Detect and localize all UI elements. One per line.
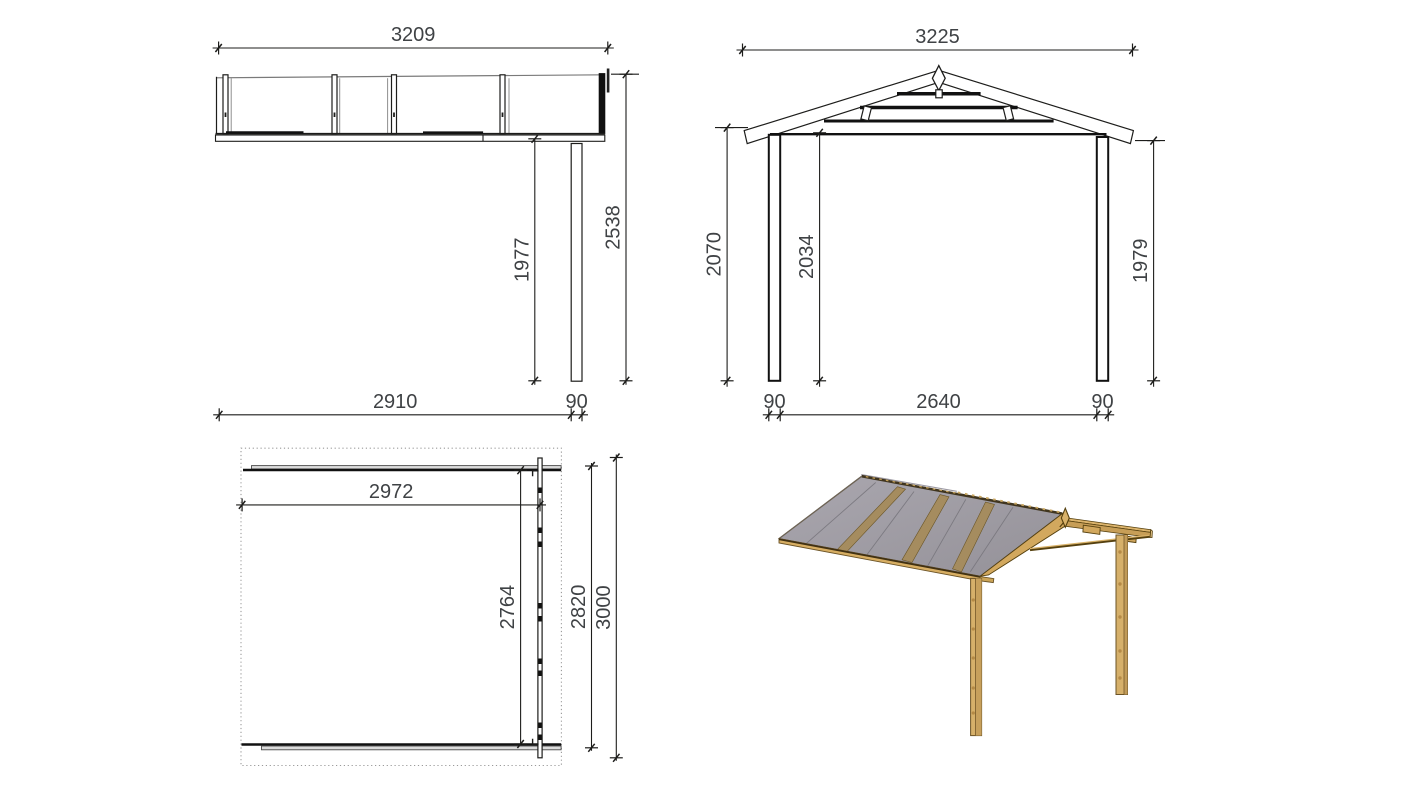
svg-text:3000: 3000	[593, 585, 615, 630]
svg-text:2764: 2764	[497, 585, 519, 630]
svg-text:90: 90	[763, 391, 785, 413]
svg-text:2538: 2538	[603, 205, 625, 250]
svg-text:90: 90	[1091, 391, 1113, 413]
svg-text:2910: 2910	[373, 391, 418, 413]
svg-text:3225: 3225	[915, 26, 960, 48]
svg-text:90: 90	[565, 391, 587, 413]
svg-text:1979: 1979	[1130, 238, 1152, 283]
svg-text:2034: 2034	[796, 235, 818, 280]
svg-text:2820: 2820	[568, 585, 590, 630]
svg-text:1977: 1977	[511, 238, 533, 283]
svg-text:2640: 2640	[916, 391, 961, 413]
svg-text:2070: 2070	[704, 232, 726, 277]
svg-text:3209: 3209	[391, 24, 436, 46]
svg-text:2972: 2972	[369, 481, 414, 503]
